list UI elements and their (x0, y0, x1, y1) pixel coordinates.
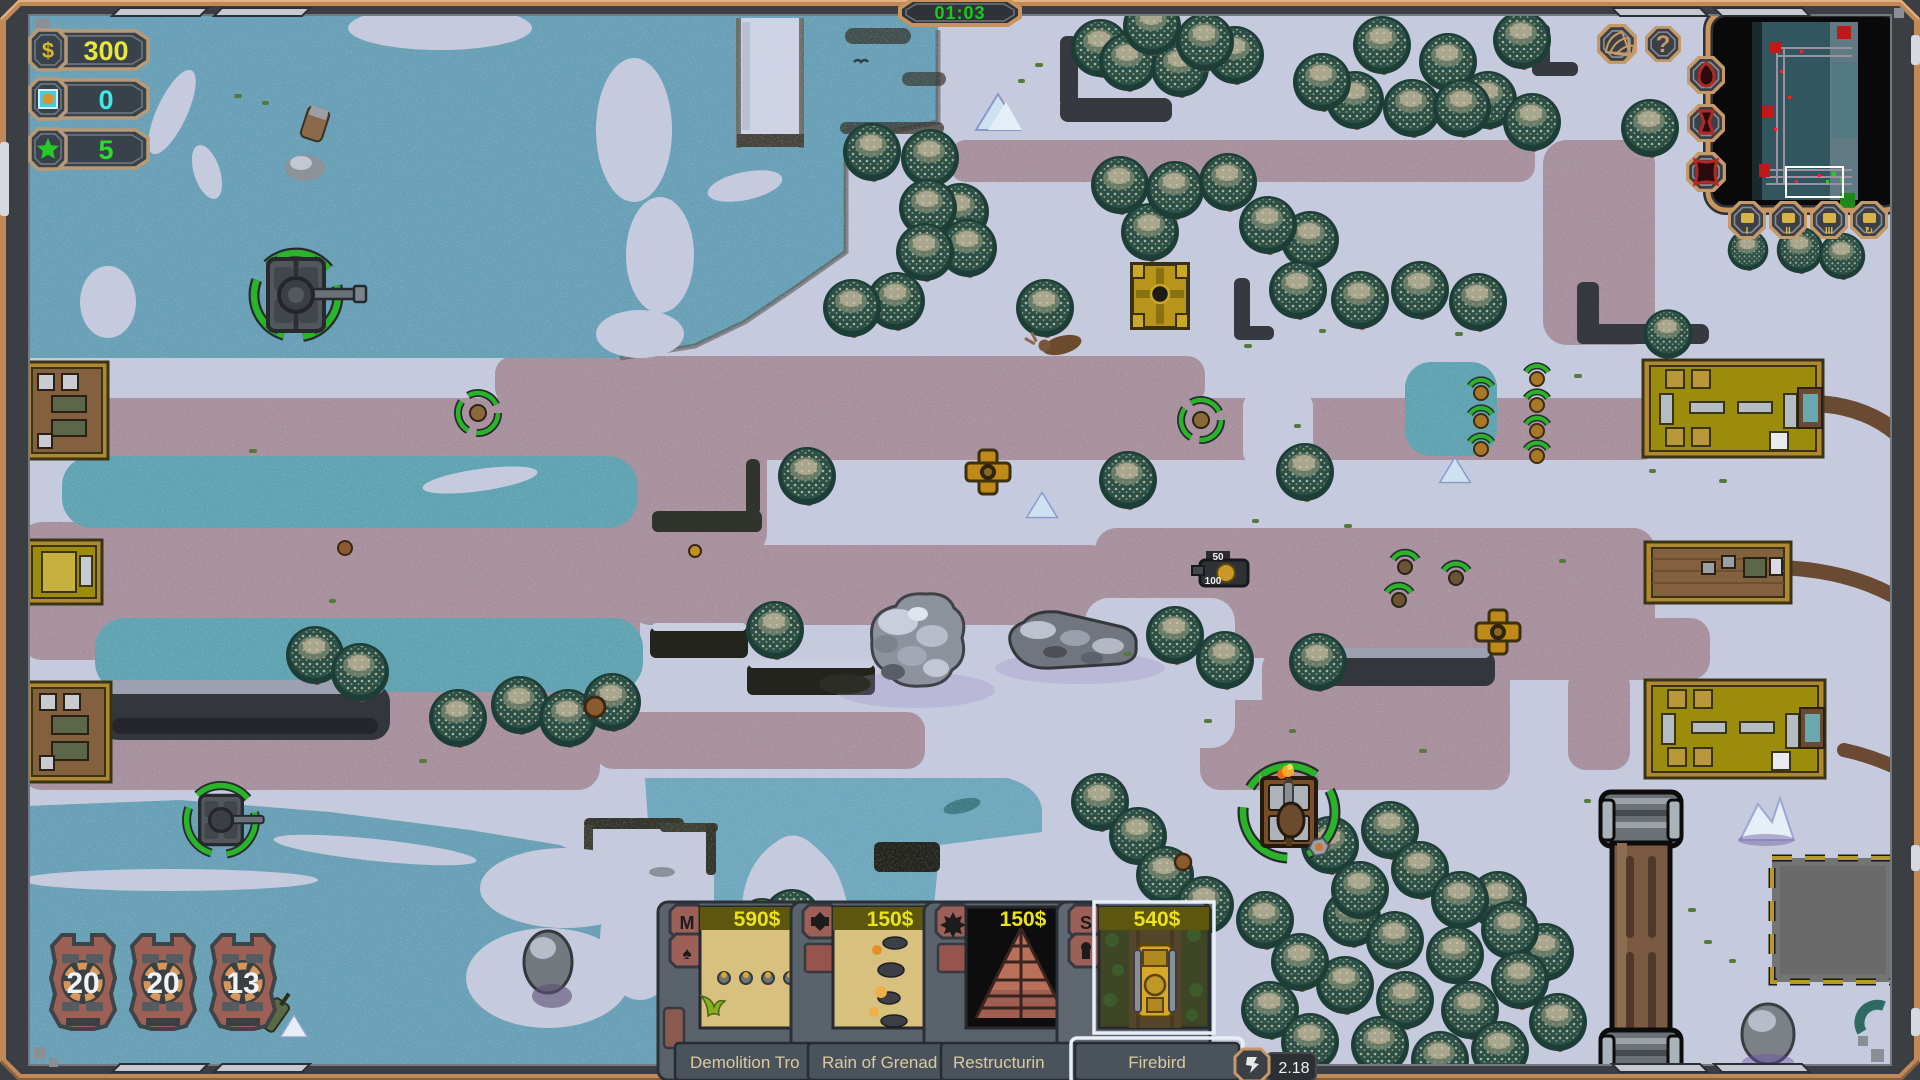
svg-text:5: 5 (98, 135, 113, 165)
svg-text:$: $ (42, 38, 54, 63)
svg-text:II: II (1785, 226, 1791, 237)
svg-text:Firebird: Firebird (1128, 1053, 1186, 1072)
svg-text:?: ? (1656, 31, 1671, 58)
svg-text:♠: ♠ (682, 944, 691, 963)
svg-text:Restructurin: Restructurin (953, 1053, 1045, 1072)
svg-text:S: S (1080, 913, 1092, 933)
svg-text:13: 13 (226, 967, 259, 1000)
svg-text:I: I (1746, 226, 1749, 237)
svg-text:M: M (680, 913, 695, 933)
svg-text:100: 100 (1205, 576, 1222, 587)
svg-text:50: 50 (1212, 552, 1224, 563)
svg-text:2.18: 2.18 (1278, 1060, 1309, 1077)
svg-text:01:03: 01:03 (934, 3, 985, 23)
svg-text:20: 20 (146, 967, 179, 1000)
svg-text:590$: 590$ (734, 908, 781, 931)
svg-text:540$: 540$ (1134, 908, 1181, 931)
svg-text:Demolition Tro: Demolition Tro (690, 1053, 800, 1072)
svg-text:Rain of Grenad: Rain of Grenad (822, 1053, 937, 1072)
svg-text:0: 0 (98, 85, 113, 115)
svg-text:150$: 150$ (867, 908, 914, 931)
svg-text:↻: ↻ (1865, 226, 1873, 237)
svg-text:150$: 150$ (1000, 908, 1047, 931)
svg-text:III: III (1825, 226, 1834, 237)
svg-text:300: 300 (83, 36, 128, 66)
svg-text:20: 20 (66, 967, 99, 1000)
